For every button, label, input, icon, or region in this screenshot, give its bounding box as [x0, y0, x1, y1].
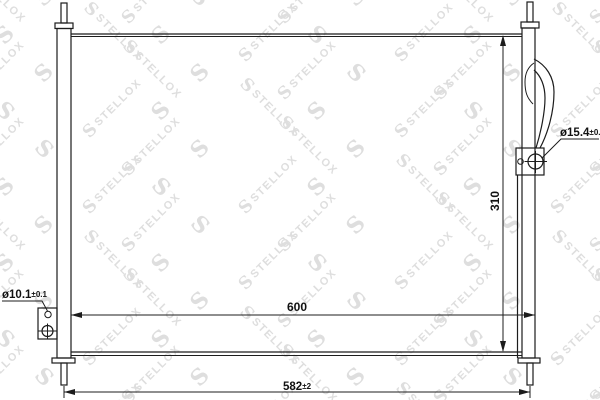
dim-582-label: 582±2	[283, 381, 312, 393]
left-tank	[57, 29, 71, 359]
dim-600: 600	[71, 300, 535, 318]
callout-large-port: ø15.4±0.1	[542, 127, 600, 158]
left-port-block	[38, 308, 57, 339]
dim-310-label: 310	[488, 191, 502, 211]
dim-310: 310	[488, 35, 506, 352]
core-bottom-edge	[71, 352, 522, 356]
refrigerant-pipe	[525, 59, 554, 148]
top-right-mount-pin	[521, 2, 539, 28]
dim-582: 582±2	[64, 381, 530, 398]
top-left-mount-pin	[55, 3, 73, 29]
left-block-screw-hole	[45, 311, 51, 317]
bottom-right-mount-pin	[518, 358, 540, 385]
right-tank	[518, 28, 536, 358]
right-port-block	[516, 148, 547, 175]
drawing-canvas: SSTELLOXSSSTELLOXSSSTELLOXSSSTELLOXSSSTE…	[0, 0, 600, 400]
bottom-left-mount-pin	[52, 358, 75, 385]
large-port-label: ø15.4±0.1	[560, 127, 600, 139]
condenser-technical-drawing: 310 600 582±2 ø10.1±0.1	[0, 0, 600, 400]
core-top-edge	[71, 34, 522, 37]
dim-600-label: 600	[287, 300, 307, 314]
small-port-label: ø10.1±0.1	[2, 289, 47, 301]
